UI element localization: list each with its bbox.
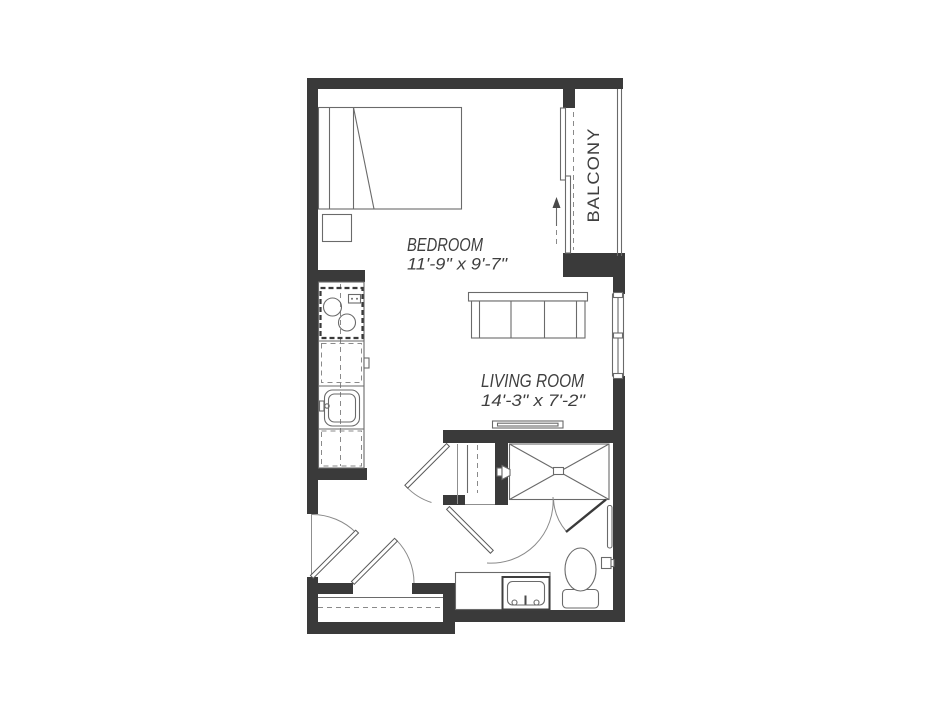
towel-bar [608, 506, 613, 549]
kitchen-area [319, 282, 370, 468]
shower-glass-door [566, 500, 606, 533]
closet-stub-right [412, 583, 455, 594]
stove-burner [339, 314, 356, 331]
bedroom-label: BEDROOM [407, 234, 483, 255]
toilet-tank [563, 590, 599, 609]
balcony-sliding-door [566, 176, 571, 253]
closet-door [351, 538, 397, 584]
floor-plan: BEDROOM 11'-9" x 9'-7" LIVING ROOM 14'-3… [0, 0, 930, 720]
wall-kitchen-stub-upper [307, 270, 365, 282]
shower-head [497, 468, 502, 476]
bathroom-area [456, 444, 615, 610]
bathroom-door [447, 507, 494, 554]
entry-door-swing-arc [312, 515, 356, 533]
wall-balcony-stub [563, 89, 575, 108]
kitchen-faucet [320, 401, 325, 411]
tv-console [493, 421, 564, 428]
bed [319, 108, 462, 210]
kitchen-sink-basin [329, 394, 356, 422]
wall-right-upper [613, 277, 625, 294]
shower-door-swing-arc [554, 500, 567, 532]
shower-drain [554, 468, 564, 475]
wall-hall-closet-stub [443, 495, 465, 505]
wall-bottom-left [307, 622, 455, 634]
bathroom-door-swing-arc [487, 497, 553, 563]
kitchen-cabinet [322, 344, 362, 383]
closet-door-swing-arc [396, 540, 414, 583]
appliance-handle [364, 358, 369, 368]
living-room-dimensions: 14'-3" x 7'-2" [481, 391, 586, 410]
living-room-label: LIVING ROOM [481, 370, 584, 391]
wall-top [307, 78, 623, 89]
nightstand [323, 215, 352, 242]
kitchen-stove [321, 288, 363, 338]
closet-stub-left [318, 583, 353, 594]
sofa-back [469, 293, 588, 302]
bedroom-dimensions: 11'-9" x 9'-7" [407, 255, 508, 274]
wall-right-lower [613, 376, 625, 622]
wall-balcony-bottom [563, 253, 625, 277]
sofa [472, 301, 586, 338]
window-mullion [614, 333, 623, 338]
window-mullion [614, 374, 623, 379]
wall-kitchen-stub-lower [307, 468, 367, 480]
balcony-sliding-door [561, 108, 566, 180]
doors [310, 444, 553, 585]
kitchen-cabinet [322, 431, 362, 466]
stove-knob [356, 298, 358, 300]
floor-plan-page: BEDROOM 11'-9" x 9'-7" LIVING ROOM 14'-3… [0, 0, 930, 720]
stove-knob [351, 298, 353, 300]
hall-closet-door [405, 444, 450, 489]
window-mullion [614, 293, 623, 298]
slide-direction-arrow-head [553, 197, 561, 208]
shower-head [502, 466, 510, 480]
wall-bottom-bathroom [455, 610, 625, 622]
bedroom-area [319, 108, 462, 242]
entry-closet [318, 598, 443, 608]
kitchen-sink [325, 390, 360, 426]
hall-closet-door-swing-arc [406, 487, 431, 503]
toilet-bowl [565, 548, 596, 591]
entry-door [310, 530, 358, 578]
wall-bathroom-top [443, 430, 625, 443]
wall-step [443, 594, 455, 634]
stove-control-panel [349, 295, 361, 304]
toilet-paper-holder [602, 558, 612, 569]
wall-left-upper [307, 78, 318, 514]
stove-burner [324, 298, 342, 316]
balcony-label: BALCONY [585, 128, 603, 223]
